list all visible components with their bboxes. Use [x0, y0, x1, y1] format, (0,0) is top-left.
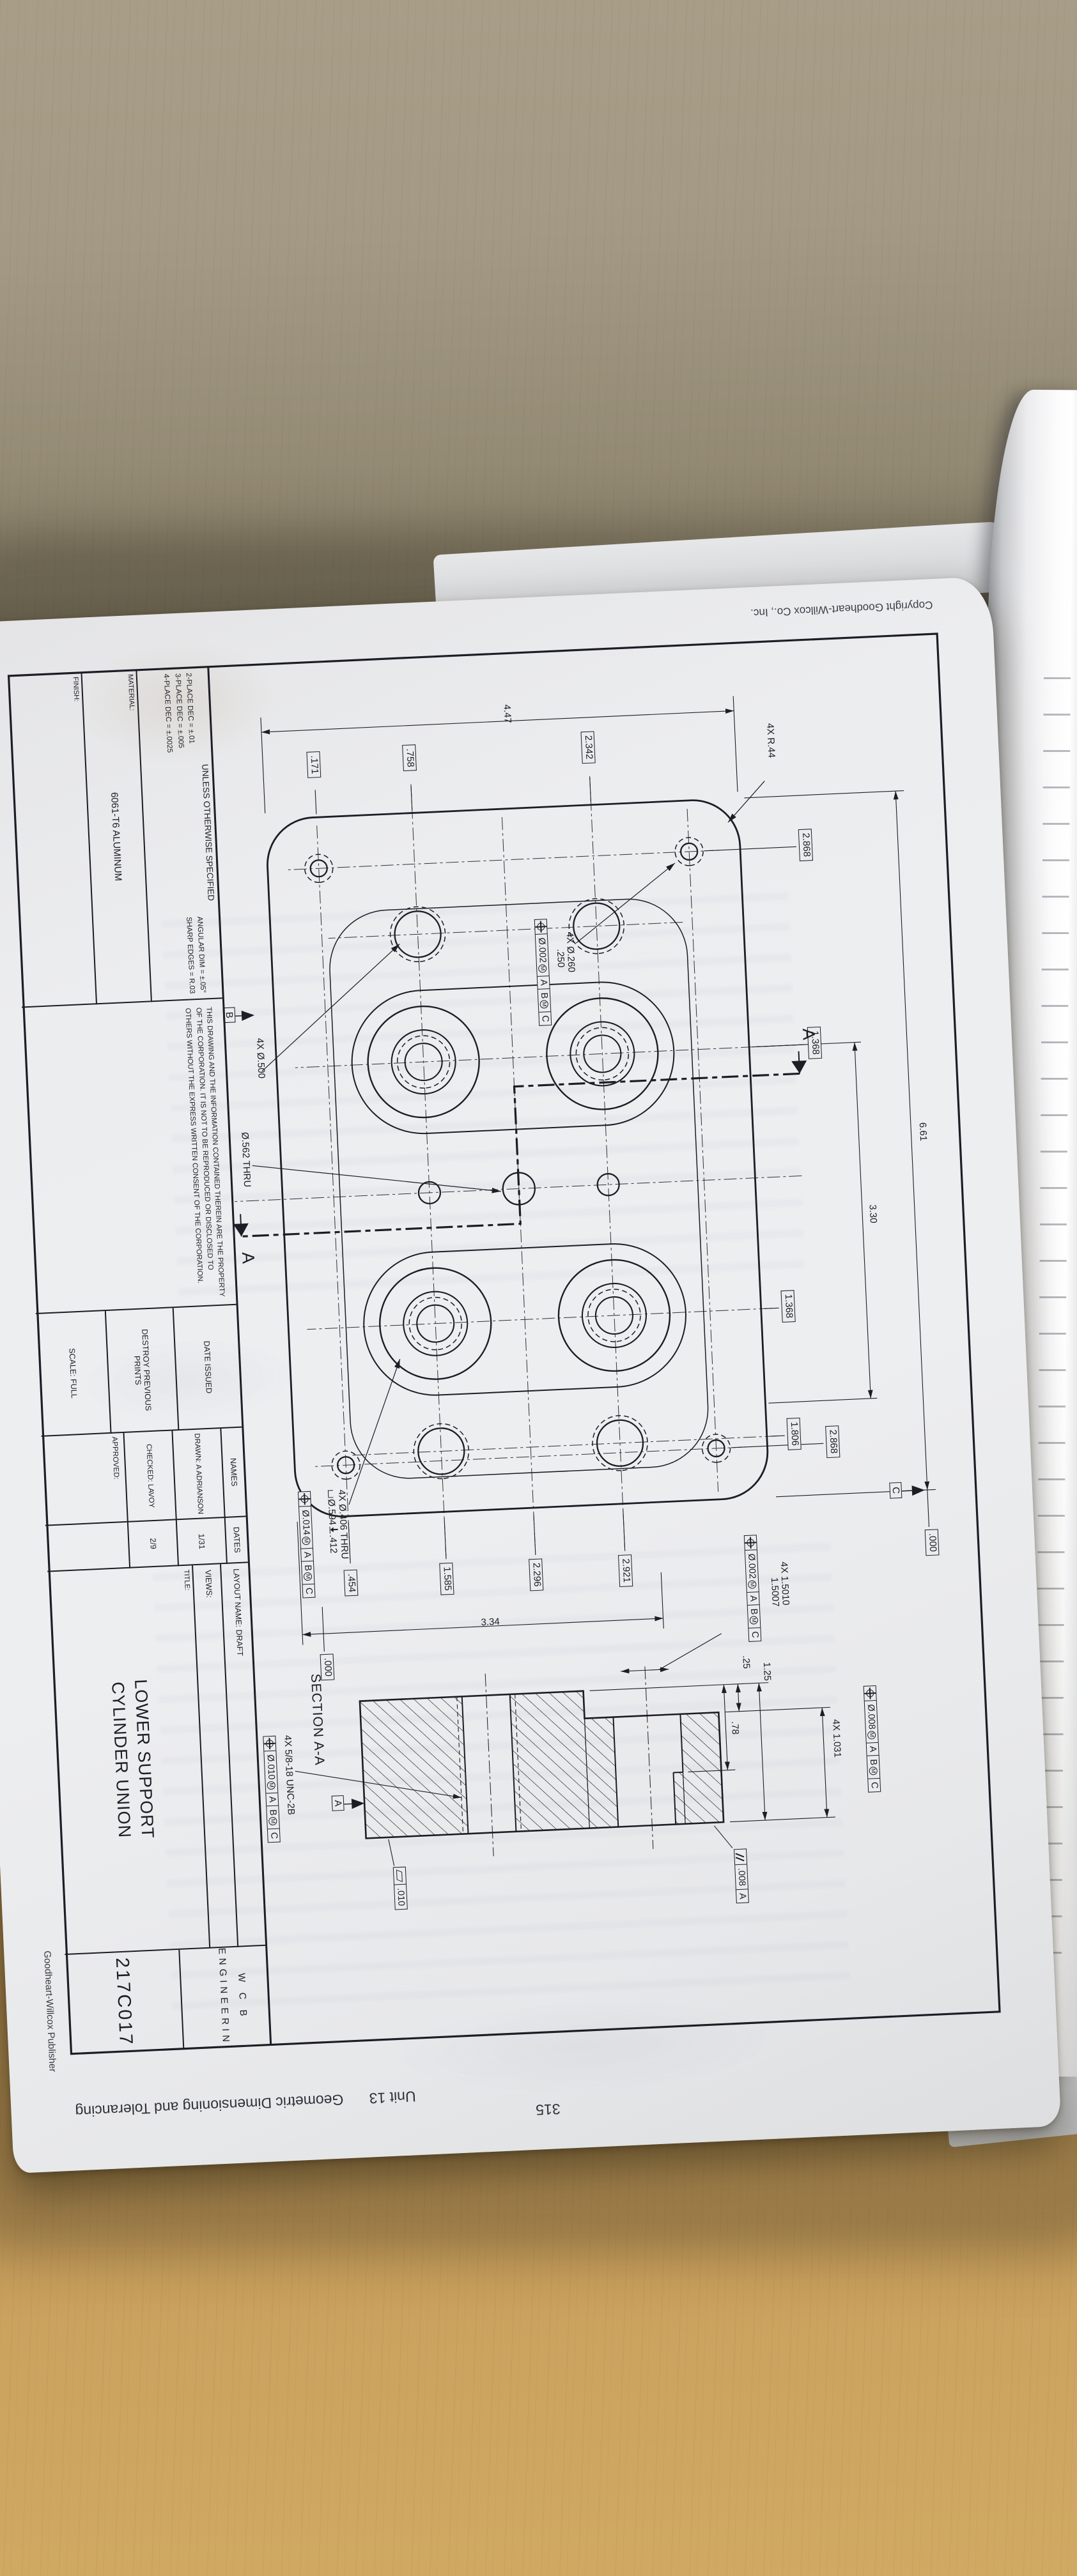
datum-flag-c: C — [889, 1482, 902, 1499]
dim-1031: 4X 1.031 — [830, 1719, 842, 1758]
checked-value: CHECKED: LAVOY — [125, 1431, 176, 1521]
date-issued-cell: DATE ISSUED — [173, 1305, 242, 1430]
datum-flag-a: A — [332, 1795, 345, 1811]
names-header: NAMES — [220, 1428, 245, 1518]
destroy-cell: DESTROY PREVIOUS PRINTS — [105, 1308, 178, 1434]
finish-label: FINISH: — [72, 677, 81, 702]
checked-date: 2/9 — [128, 1520, 178, 1567]
hole-note-500: 4X Ø.500 — [254, 1038, 267, 1078]
fcf-parallelism: .008A — [734, 1848, 749, 1903]
basic-dim-000-top: .000 — [925, 1529, 940, 1556]
basic-dim-2296: 2.296 — [529, 1558, 543, 1590]
basic-dim-2868-b: 2.868 — [825, 1425, 840, 1457]
dim-overall-height: 4.47 — [501, 704, 513, 723]
mmc-modifier-icon: M — [304, 1572, 313, 1581]
dim-330: 3.30 — [867, 1204, 878, 1223]
dim-1501: 4X 1.5010 1.5007 — [768, 1561, 791, 1607]
scale-label: SCALE: FULL — [36, 1311, 111, 1436]
cbore-dia: Ø.594 — [326, 1499, 338, 1526]
footer-unit: Unit 13 — [369, 2088, 416, 2106]
basic-dim-171: .171 — [307, 751, 322, 778]
dim-overall-width: 6.61 — [917, 1122, 928, 1141]
heading-title: Cylinder Union Lower Support — [0, 785, 1, 1028]
mmc-modifier-icon: M — [748, 1580, 757, 1589]
note-corner-radius: 4X R.44 — [764, 723, 776, 758]
photo-of-textbook-page: { "margins": { "heading_bold": "PR 13-1.… — [0, 0, 1077, 2576]
parallelism-icon — [736, 1853, 745, 1862]
basic-dim-454: .454 — [344, 1570, 359, 1597]
basic-dim-2342: 2.342 — [581, 731, 596, 763]
cutting-plane-label-a1: A — [799, 1028, 819, 1040]
hole-note-406: 4X Ø.406 THRU Ø.594.412 — [325, 1489, 349, 1560]
basic-dim-1806: 1.806 — [787, 1418, 802, 1450]
mmc-modifier-icon: M — [869, 1767, 878, 1775]
mmc-modifier-icon: M — [269, 1817, 278, 1826]
page-footer: Unit 13 Geometric Dimensioning and Toler… — [75, 2087, 416, 2120]
scale-cell: SCALE: FULL — [36, 1311, 111, 1437]
dates-header: DATES — [224, 1517, 248, 1563]
page-heading: PR 13-1. Cylinder Union Lower Support — [0, 716, 1, 1029]
mmc-modifier-icon: M — [540, 1000, 549, 1009]
cbore-depth: .412 — [327, 1535, 339, 1554]
hole-note-562: Ø.562 THRU — [239, 1132, 252, 1188]
basic-dim-1585: 1.585 — [439, 1563, 454, 1595]
counterbore-icon — [328, 1490, 334, 1498]
publisher-note: Goodheart-Willcox Publisher — [42, 1951, 58, 2073]
company-cell: W C B ENGINEERING — [178, 1946, 270, 2049]
approved-cell: APPROVED: — [42, 1433, 127, 1526]
hole-note-260: 4X Ø.260 .250 — [554, 931, 576, 973]
names-label: NAMES — [221, 1428, 245, 1517]
drawing-sheet: 6.61 .000 C 3.30 2.868 1.368 1.368 1.806… — [1, 625, 1008, 2062]
dim-334: 3.34 — [481, 1617, 500, 1629]
approved-date-cell — [45, 1522, 129, 1572]
basic-dim-2921: 2.921 — [618, 1554, 633, 1586]
title-cell: TITLE: LOWER SUPPORT CYLINDER UNION — [47, 1565, 209, 1955]
depth-icon — [330, 1526, 338, 1534]
dim-25: .25 — [740, 1655, 752, 1669]
position-icon — [266, 1740, 274, 1748]
book-page: PR 13-1. Cylinder Union Lower Support Go… — [0, 576, 1061, 2173]
flatness-icon — [396, 1869, 403, 1882]
legal-cell: THIS DRAWING AND THE INFORMATION CONTAIN… — [22, 999, 236, 1314]
page-number: 315 — [536, 2100, 561, 2119]
checked-cell: CHECKED: LAVOY — [123, 1431, 176, 1522]
basic-dim-1368-b: 1.368 — [781, 1290, 796, 1322]
dim-78: .78 — [729, 1721, 740, 1735]
basic-dim-2868-a: 2.868 — [798, 829, 813, 861]
material-value: 6061-T6 ALUMINUM — [103, 671, 128, 1002]
tolerance-block: UNLESS OTHERWISE SPECIFIED 2-PLACE DEC =… — [136, 667, 222, 1002]
mmc-modifier-icon: M — [302, 1536, 311, 1545]
mmc-modifier-icon: M — [267, 1781, 276, 1790]
material-label: MATERIAL: — [127, 674, 136, 711]
destroy-label: DESTROY PREVIOUS PRINTS — [106, 1308, 178, 1432]
basic-dim-758: .758 — [402, 744, 417, 771]
drawn-date-cell: 1/31 — [176, 1518, 226, 1566]
dates-label: DATES — [226, 1517, 248, 1562]
dim-125: 1.25 — [761, 1662, 772, 1681]
mmc-modifier-icon: M — [538, 964, 547, 973]
drawing-number: 217C017 — [65, 1950, 183, 2054]
mmc-modifier-icon: M — [867, 1731, 876, 1740]
date-issued-label: DATE ISSUED — [174, 1305, 242, 1429]
drawn-cell: DRAWN: A ADRIANSON — [171, 1429, 224, 1520]
copyright-note: Copyright Goodheart-Willcox Co., Inc. — [750, 598, 933, 619]
title-label: TITLE: — [182, 1569, 190, 1591]
mmc-modifier-icon: M — [750, 1616, 759, 1625]
drawing-number-cell: 217C017 — [65, 1950, 183, 2054]
position-icon — [747, 1538, 755, 1547]
position-icon — [300, 1495, 309, 1503]
fcf-flatness: .010 — [393, 1867, 408, 1910]
drawn-date: 1/31 — [177, 1518, 226, 1565]
checked-date-cell: 2/9 — [127, 1520, 178, 1568]
finish-cell: FINISH: — [7, 673, 96, 1008]
cutting-plane-label-a2: A — [238, 1252, 258, 1264]
footer-title: Geometric Dimensioning and Tolerancing — [75, 2091, 344, 2120]
position-icon — [537, 923, 545, 931]
position-icon — [866, 1689, 874, 1698]
drawn-value: DRAWN: A ADRIANSON — [173, 1429, 224, 1519]
